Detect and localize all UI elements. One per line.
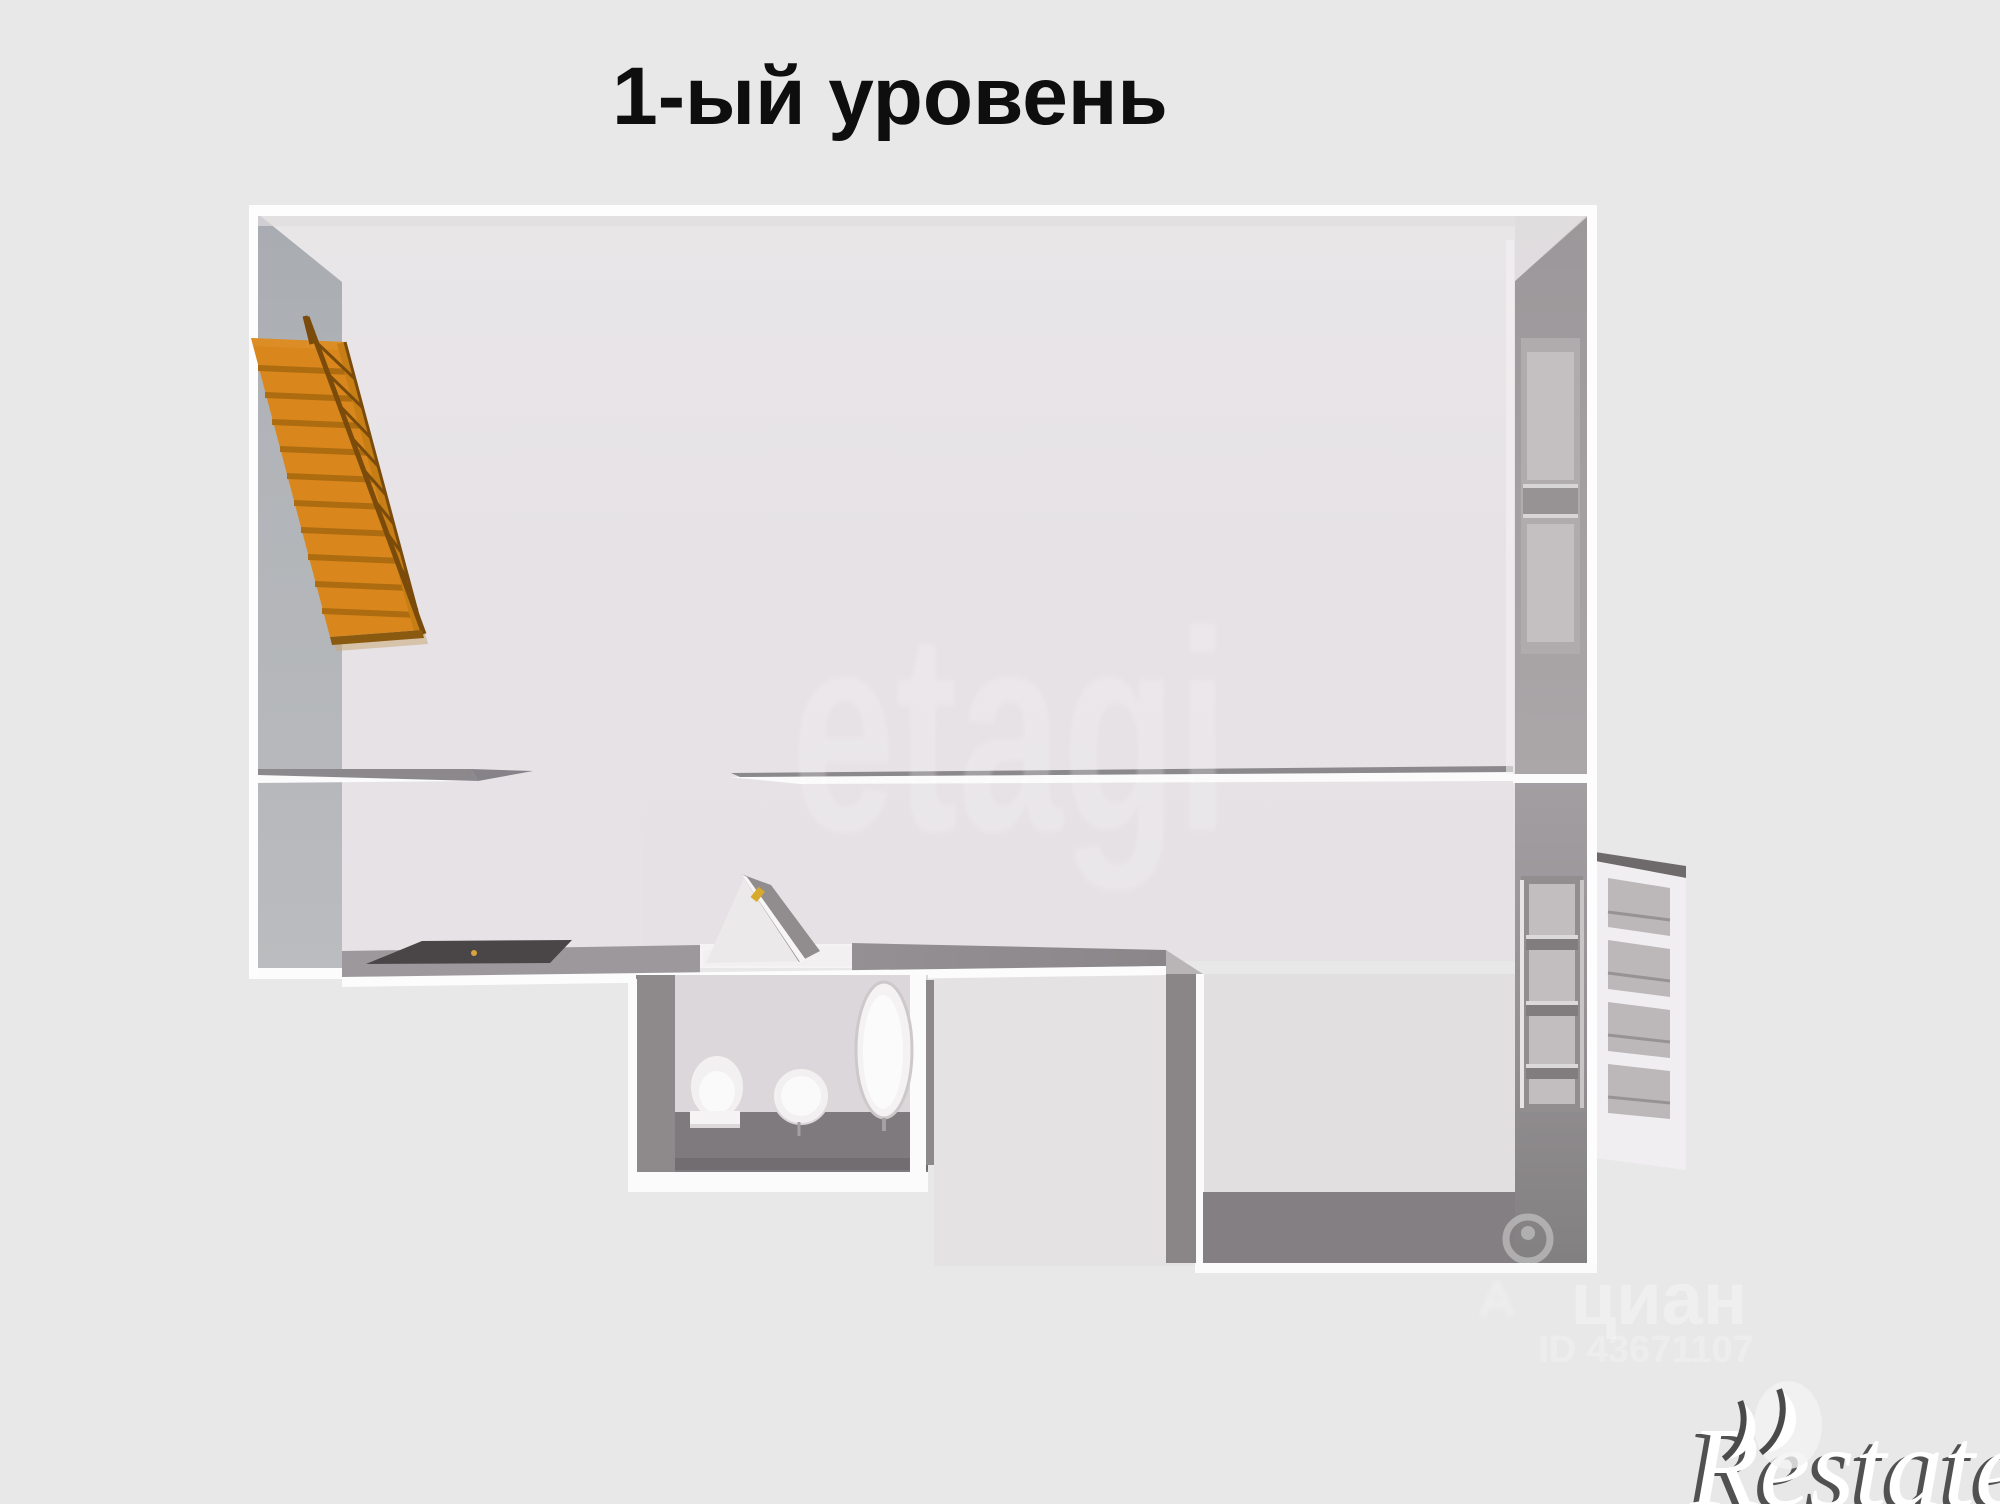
svg-text:etagi: etagi [791, 574, 1229, 892]
svg-text:циан: циан [1571, 1257, 1748, 1340]
svg-text:ID 43671107: ID 43671107 [1538, 1329, 1754, 1371]
